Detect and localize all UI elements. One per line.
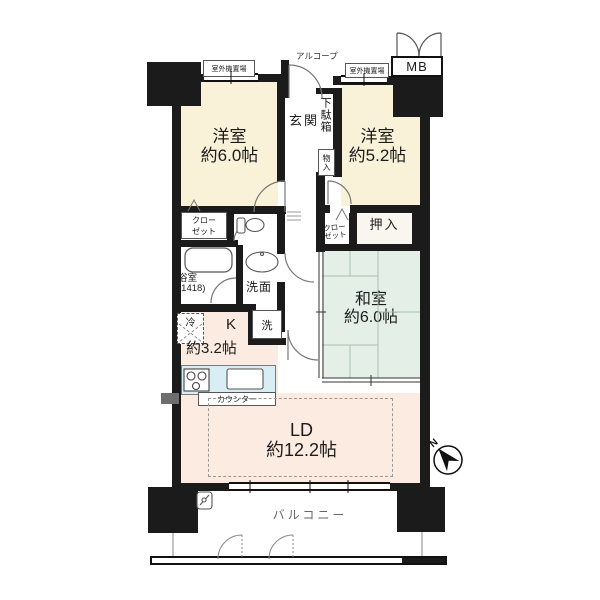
wall-pillar-top-right: [393, 76, 443, 117]
western1-name: 洋室: [213, 128, 247, 147]
washroom-label: 洗面: [246, 281, 272, 294]
closet-left-line2: ゼット: [192, 226, 216, 237]
outdoor-unit-right-text: 室外機置場: [350, 66, 385, 76]
japanese-label: 和室 約6.0帖: [322, 283, 420, 335]
wall-bath-right: [236, 245, 243, 310]
closet-left-line1: クロー: [192, 215, 216, 226]
washer-box: 洗: [252, 310, 282, 339]
closet-right-line2: ゼット: [324, 231, 347, 242]
wall-kitchen-top: [172, 304, 256, 312]
wall-west2-bottom: [350, 205, 420, 213]
mb-door-arcs: [397, 33, 441, 56]
window-balcony-sliding: [229, 482, 390, 491]
japanese-size: 約6.0帖: [344, 309, 398, 327]
wall-left: [172, 100, 181, 490]
wall-pillar-bottom-right: [397, 487, 445, 532]
outdoor-unit-right-label: 室外機置場: [345, 63, 389, 78]
western2-label: 洋室 約5.2帖: [335, 118, 420, 176]
storage-text: 物入: [321, 154, 332, 172]
western1-size: 約6.0帖: [201, 147, 259, 166]
wall-right: [420, 110, 430, 490]
bath-name: 浴室: [178, 273, 197, 284]
wall-corridor-left-upper: [277, 80, 285, 182]
washer-text: 洗: [262, 317, 273, 333]
toilet-icon: [237, 218, 264, 233]
closet-left-label: クロー ゼット: [181, 212, 227, 239]
bath-size: (1418): [178, 283, 205, 294]
oshiire-label: 押入: [357, 218, 412, 232]
bath-door-arc: [211, 278, 236, 303]
outdoor-unit-left-text: 室外機置場: [212, 64, 247, 74]
wall-balcony-right: [390, 483, 422, 491]
western2-size: 約5.2帖: [349, 147, 407, 166]
wall-washer-bottom: [248, 338, 286, 345]
meter-box-label: MB: [391, 56, 443, 77]
ld-door-arc: [288, 330, 318, 360]
toilet-door-arc: [234, 224, 251, 241]
pipe-space-box: [161, 393, 179, 404]
washroom-door-arc: [285, 253, 314, 282]
bathtub-icon: [185, 248, 232, 272]
closet-right-label: クロー ゼット: [319, 217, 352, 248]
japanese-name: 和室: [355, 291, 387, 309]
mb-text: MB: [406, 59, 428, 74]
washbasin-icon: [246, 252, 278, 272]
water-tap-icon: [197, 492, 212, 509]
wall-balcony-left: [181, 483, 229, 491]
balcony-label: バルコニー: [250, 509, 370, 522]
kitchen-size: 約3.2帖: [186, 341, 237, 358]
bath-label: 浴室 (1418): [178, 274, 205, 295]
western1-label: 洋室 約6.0帖: [181, 118, 278, 176]
wall-pillar-bottom-left: [148, 487, 198, 533]
alcove-label: アルコープ: [296, 52, 338, 61]
balcony-door-arcs: [173, 532, 422, 559]
entrance-label: 玄関: [289, 114, 319, 128]
outdoor-unit-left-label: 室外機置場: [203, 60, 255, 77]
wall-washroom-right-upper: [277, 206, 285, 254]
floor-plan: 室外機置場 室外機置場 アルコープ MB 玄関 下駄箱 物入 クロー ゼット ク…: [0, 0, 600, 600]
kitchen-name: K: [226, 317, 236, 334]
wall-oshiire-right: [412, 213, 420, 247]
wall-west2-bottom-stub: [316, 205, 330, 213]
kitchen-counter: [181, 365, 276, 395]
fridge-text: 冷: [186, 314, 196, 329]
ld-dashed-outline: [208, 398, 393, 477]
wall-bath-top: [172, 240, 238, 247]
storage-label: 物入: [318, 149, 335, 176]
shoe-box-label: 下駄箱: [319, 97, 331, 151]
western2-name: 洋室: [361, 128, 395, 147]
entrance-step-lines: [287, 212, 301, 220]
balcony-railing-solid: [402, 558, 445, 563]
